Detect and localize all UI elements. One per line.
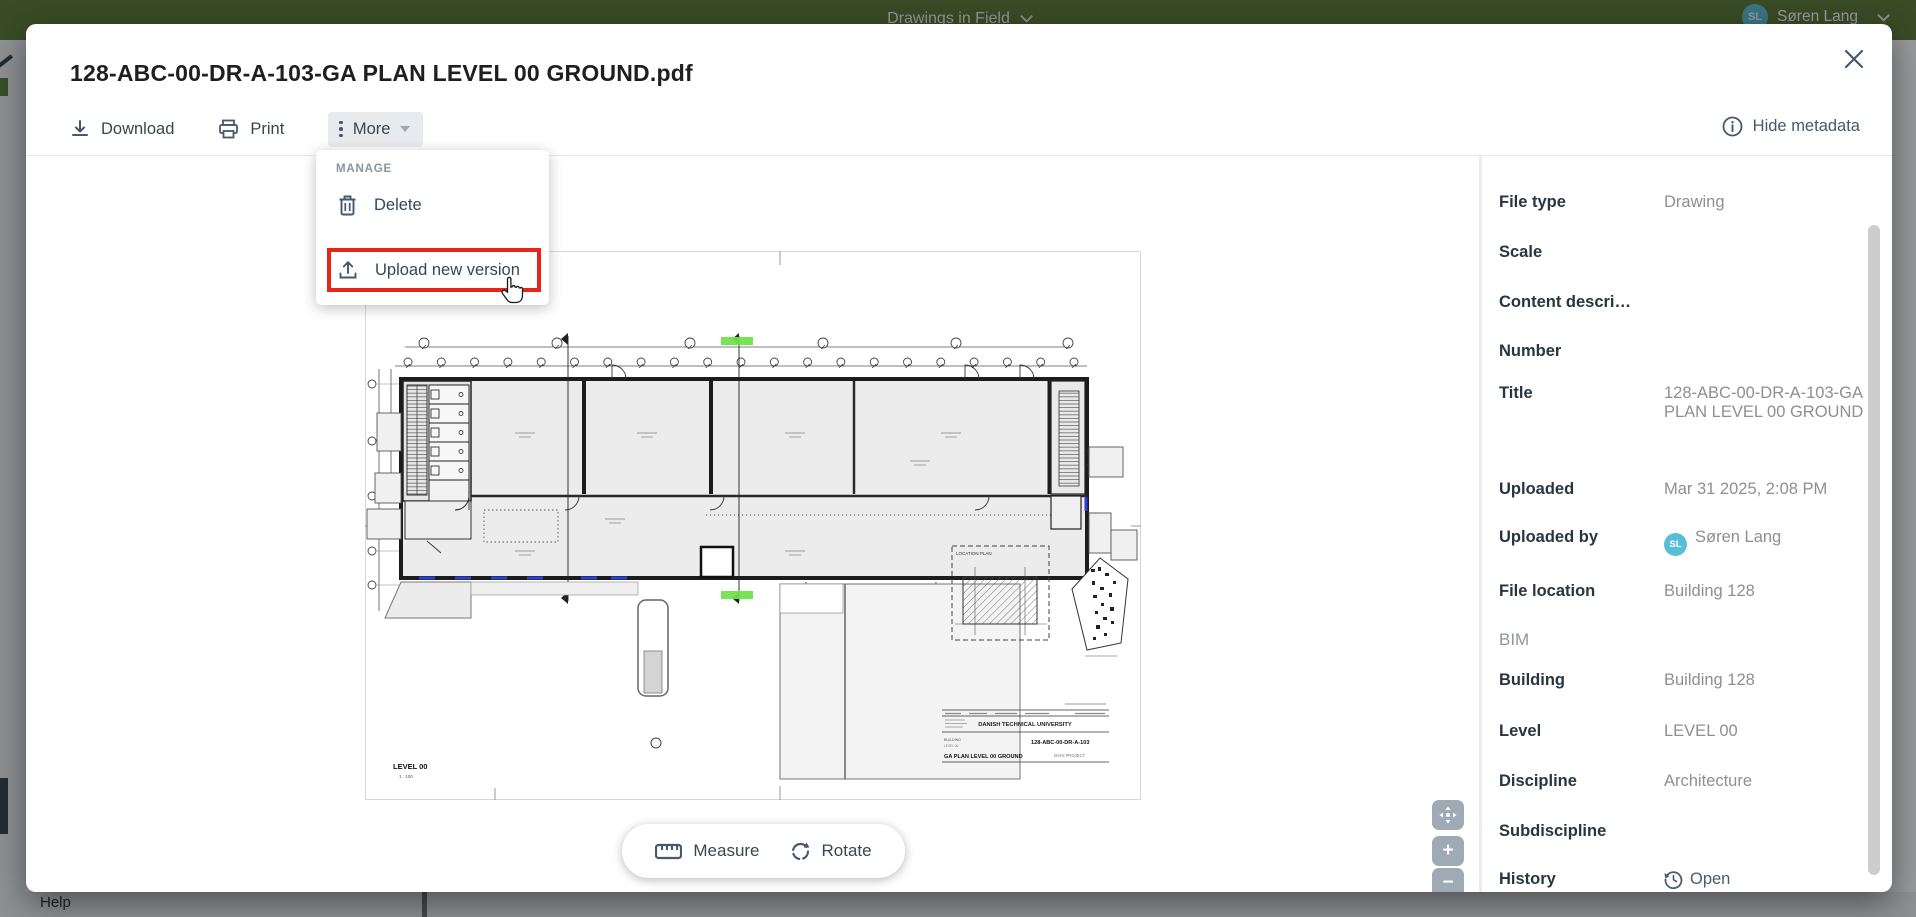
info-icon (1722, 116, 1743, 137)
meta-row-uploaded-by: Uploaded bySLSøren Lang (1499, 528, 1879, 556)
viewer-action-bar: Measure Rotate (622, 824, 905, 878)
fit-screen-button[interactable] (1432, 800, 1464, 830)
file-title: 128-ABC-00-DR-A-103-GA PLAN LEVEL 00 GRO… (70, 60, 693, 87)
meta-row-number: Number (1499, 342, 1879, 361)
metadata-panel: File typeDrawing Scale Content descri… N… (1484, 156, 1892, 892)
avatar: SL (1664, 533, 1687, 556)
svg-text:BUILDING: BUILDING (944, 738, 961, 742)
zoom-in-button[interactable]: + (1432, 836, 1464, 866)
kebab-icon (339, 121, 343, 138)
download-icon (70, 119, 90, 139)
menu-item-upload-new-version[interactable]: Upload new version (316, 248, 549, 292)
pdf-viewer-canvas[interactable]: LOCATION PLAN DA (26, 156, 1480, 892)
meta-row-content-description: Content descri… (1499, 293, 1879, 312)
meta-row-level: LevelLEVEL 00 (1499, 722, 1879, 741)
svg-text:GA PLAN LEVEL 00 GROUND: GA PLAN LEVEL 00 GROUND (944, 754, 1023, 760)
svg-text:LOCATION PLAN: LOCATION PLAN (956, 551, 992, 556)
meta-row-uploaded: UploadedMar 31 2025, 2:08 PM (1499, 480, 1879, 499)
rotate-button[interactable]: Rotate (790, 841, 872, 862)
meta-row-subdiscipline: Subdiscipline (1499, 822, 1879, 841)
print-icon (218, 119, 239, 139)
hide-metadata-button[interactable]: Hide metadata (1722, 116, 1860, 137)
measure-button[interactable]: Measure (655, 841, 759, 861)
meta-row-title: Title128-ABC-00-DR-A-103-GA PLAN LEVEL 0… (1499, 384, 1879, 422)
meta-row-building: BuildingBuilding 128 (1499, 671, 1879, 690)
ruler-icon (655, 843, 682, 860)
menu-section-manage: MANAGE (336, 163, 392, 175)
pan-icon (1439, 806, 1457, 824)
modal-toolbar: Download Print More (70, 110, 423, 148)
sheet-scale-label: 1 : 100 (399, 774, 413, 779)
zoom-out-button[interactable]: − (1432, 868, 1464, 892)
history-open-link[interactable]: Open (1664, 870, 1730, 889)
meta-row-file-location: File locationBuilding 128 (1499, 582, 1879, 601)
rotate-icon (790, 841, 811, 862)
trash-icon (338, 195, 357, 216)
building-outline (401, 379, 1087, 578)
sheet-level-label: LEVEL 00 (393, 762, 427, 771)
file-preview-modal: 128-ABC-00-DR-A-103-GA PLAN LEVEL 00 GRO… (26, 24, 1892, 892)
meta-row-file-type: File typeDrawing (1499, 193, 1879, 212)
svg-text:LEVEL 00: LEVEL 00 (944, 744, 958, 748)
print-button[interactable]: Print (218, 119, 284, 139)
more-dropdown-menu: MANAGE Delete Upload new version (316, 150, 549, 305)
meta-row-scale: Scale (1499, 243, 1879, 262)
close-icon[interactable] (1843, 48, 1865, 70)
download-button[interactable]: Download (70, 119, 174, 139)
history-icon (1664, 870, 1683, 889)
caret-down-icon (400, 126, 410, 132)
panel-divider (1479, 156, 1482, 892)
meta-row-history: History Open (1499, 870, 1879, 894)
drawing-sheet: LOCATION PLAN DA (365, 251, 1141, 800)
svg-text:MAIN PROJECT: MAIN PROJECT (1054, 753, 1086, 758)
svg-text:DANISH TECHNICAL UNIVERSITY: DANISH TECHNICAL UNIVERSITY (978, 722, 1072, 728)
upload-icon (338, 260, 358, 280)
more-button[interactable]: More (328, 112, 423, 147)
metadata-scrollbar[interactable] (1868, 225, 1880, 875)
svg-text:128-ABC-00-DR-A-103: 128-ABC-00-DR-A-103 (1031, 740, 1089, 746)
meta-section-bim: BIM (1499, 630, 1529, 650)
meta-row-discipline: DisciplineArchitecture (1499, 772, 1879, 791)
menu-item-delete[interactable]: Delete (316, 183, 549, 227)
